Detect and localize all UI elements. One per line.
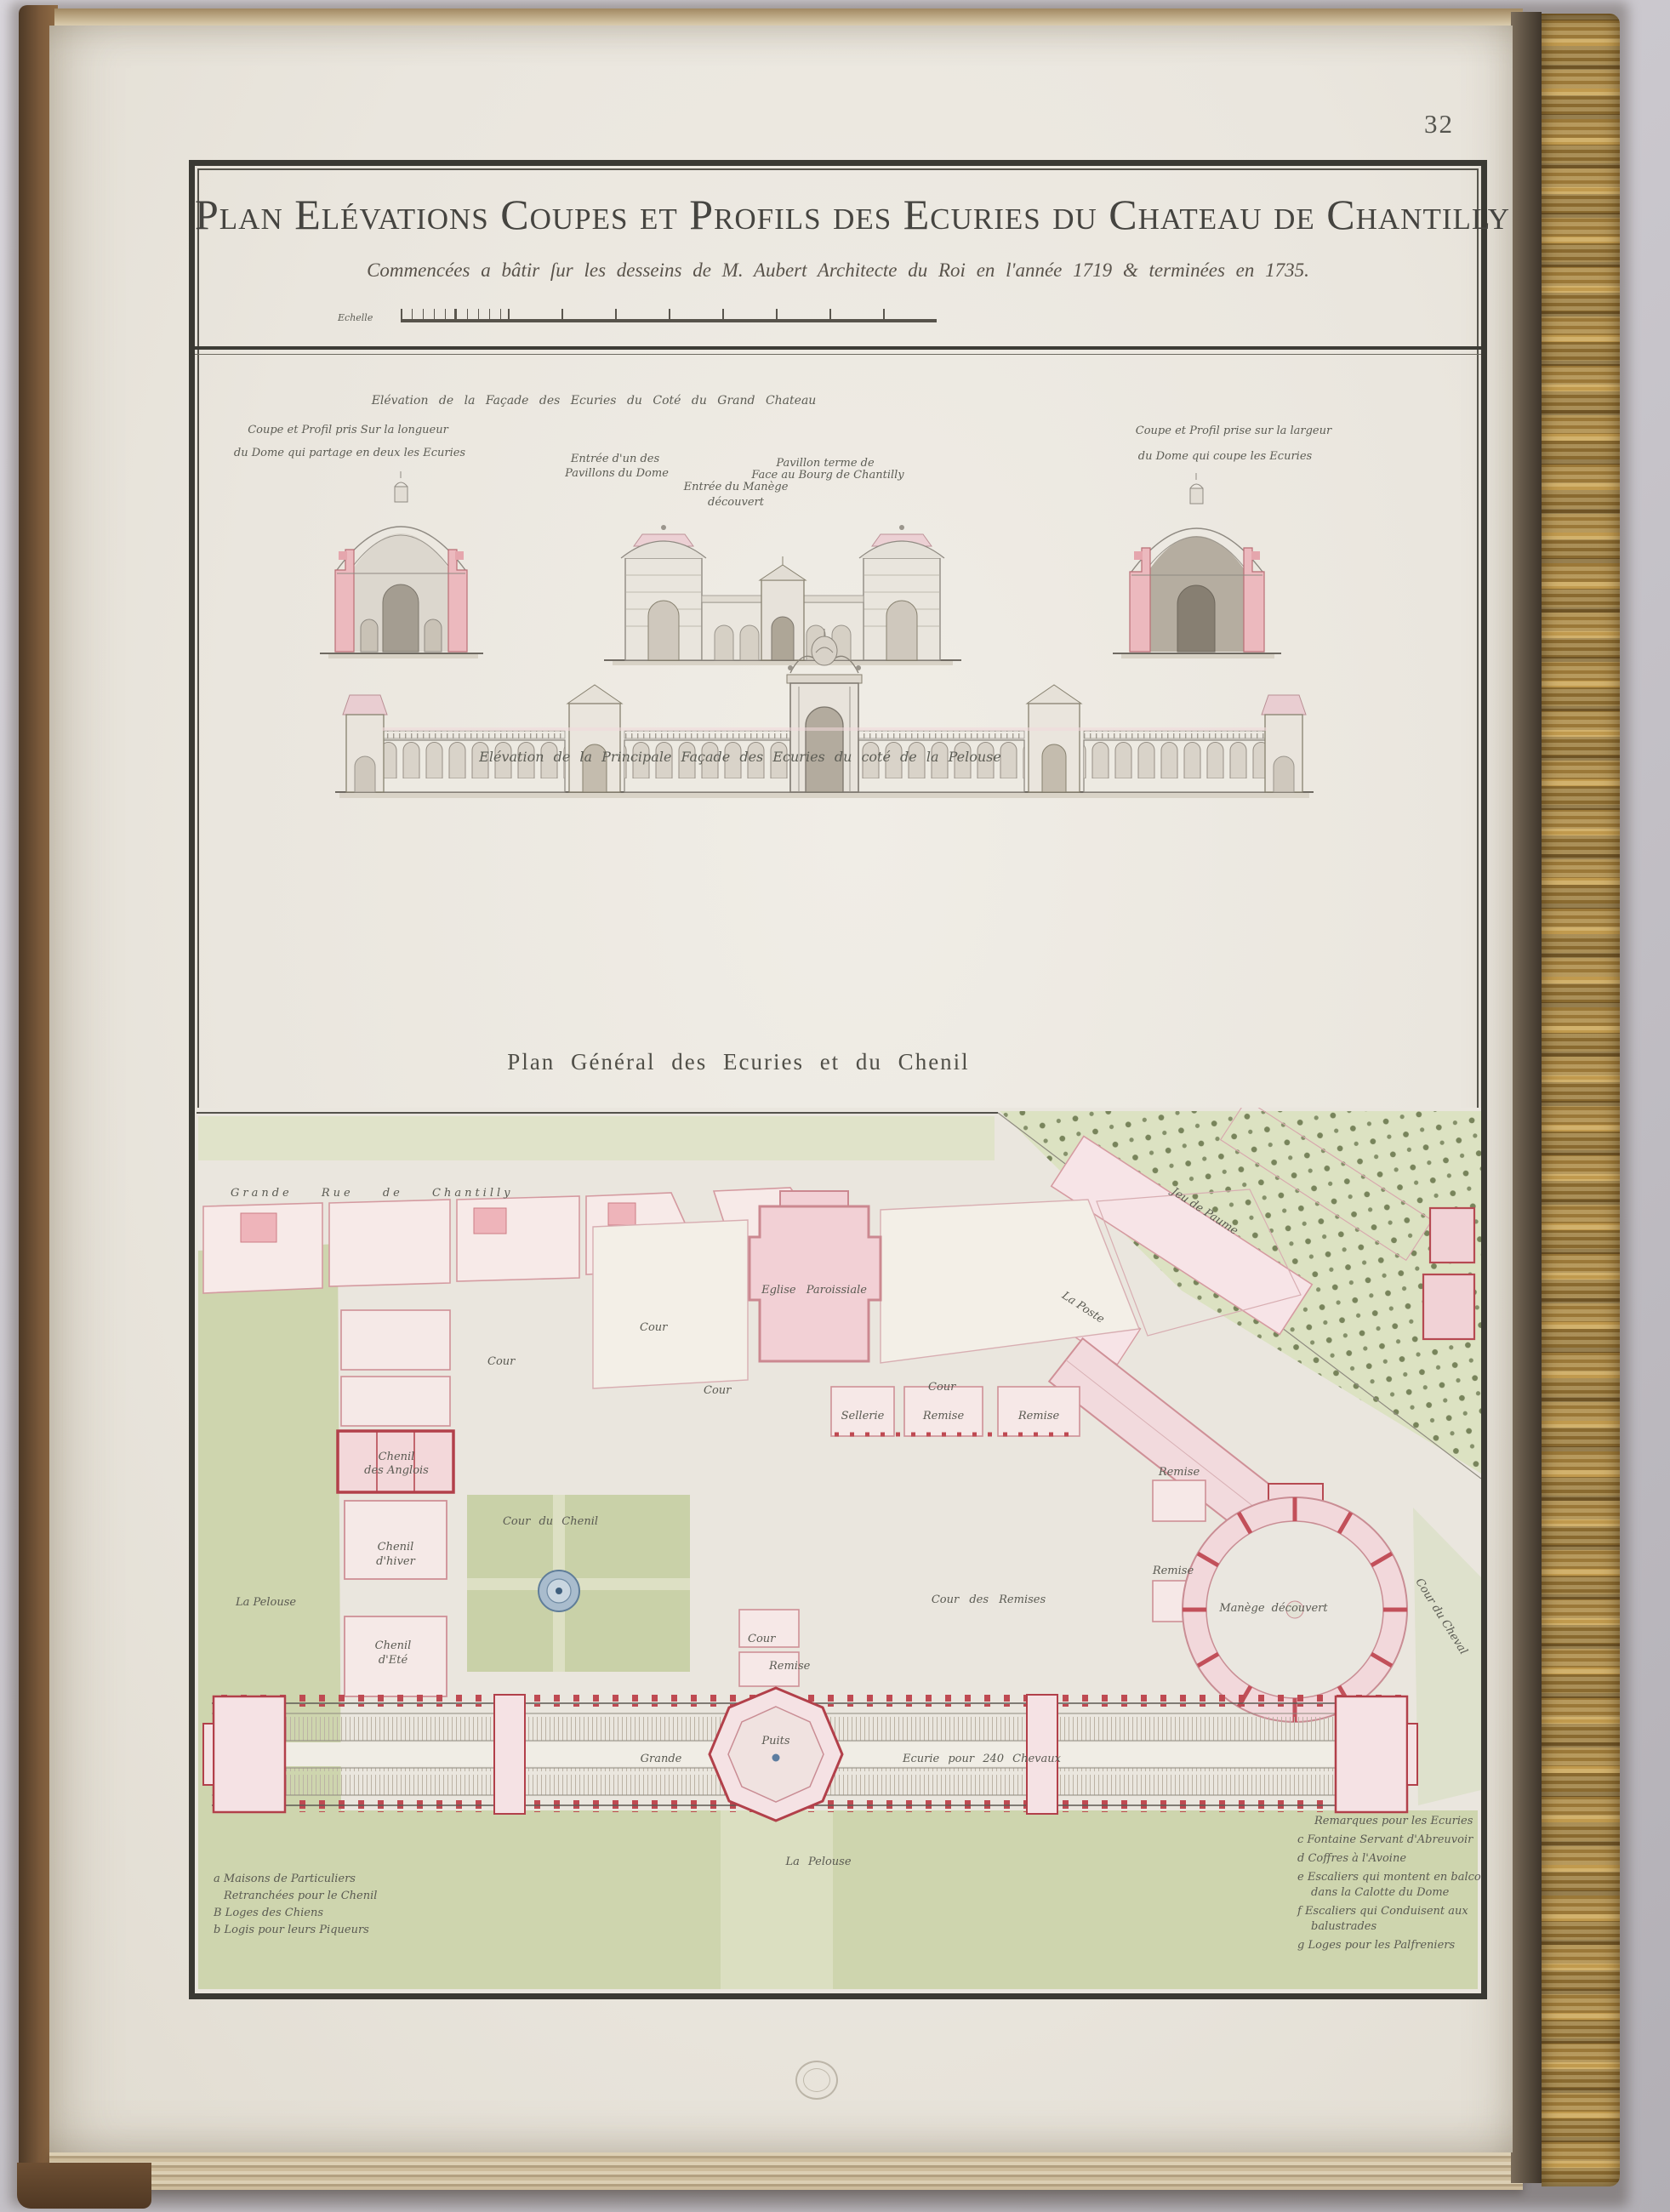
caption-left-section-1: Coupe et Profil pris Sur la longueur [248,424,448,436]
legend-right-line-e2: dans la Calotte du Dome [1311,1886,1450,1899]
plan-label-remise-5: Remise [768,1660,811,1673]
plan-label-pelouse-left: La Pelouse [235,1596,296,1609]
book-right-shadow-gap [1511,12,1542,2183]
caption-right-section-1: Coupe et Profil prise sur la largeur [1136,425,1331,437]
label-entrance-pavilion-1: Entrée d'un des [571,453,659,465]
caption-main-facade: Elévation de la Principale Façade des Ec… [479,749,1001,765]
legend-right-title: Remarques pour les Ecuries [1314,1815,1473,1827]
plan-label-cour-4: Cour [487,1355,516,1368]
plan-label-chenil-hiver-2: d'hiver [376,1555,415,1568]
title-separator-rule [195,346,1481,355]
scale-label: Echelle [338,312,373,323]
plan-label-manege: Manège découvert [1218,1602,1328,1615]
plate-frame: Plan Elévations Coupes et Profils des Ec… [189,160,1487,1999]
legend-right-line-c: c Fontaine Servant d'Abreuvoir [1297,1833,1473,1846]
blind-stamp [795,2061,838,2100]
plan-label-chenil-ete-1: Chenil [375,1639,412,1652]
legend-right-line-e1: e Escaliers qui montent en balcon [1297,1871,1481,1884]
label-end-pavilion-1: Pavillon terme de [776,457,874,470]
plan-label-cour-2: Cour [704,1384,732,1397]
plan-label-remise-1: Remise [922,1410,965,1422]
plan-label-remise-3: Remise [1158,1466,1200,1479]
plan-label-ecurie: Ecurie pour 240 Chevaux [902,1753,1062,1765]
book-cover-bottom-corner [17,2163,151,2209]
folio-number: 32 [1424,109,1454,140]
plan-label-cour-du-chenil: Cour du Chenil [503,1515,598,1528]
plan-label-chenil-anglois-2: des Anglois [364,1464,429,1477]
plate-title: Plan Elévations Coupes et Profils des Ec… [195,190,1481,239]
legend-right-line-d: d Coffres à l'Avoine [1297,1852,1406,1865]
plan-label-pelouse-bottom: La Pelouse [784,1856,851,1868]
legend-right-line-g: g Loges pour les Palfreniers [1297,1939,1455,1952]
plate-subtitle: Commencées a bâtir ſur les desseins de M… [195,259,1481,282]
legend-right-line-f2: balustrades [1311,1920,1376,1933]
label-end-pavilion-2: Face au Bourg de Chantilly [751,469,903,482]
legend-left-line-a2: Retranchées pour le Chenil [223,1890,377,1902]
plan-label-cour-des-remises: Cour des Remises [932,1593,1046,1606]
caption-right-section-2: du Dome qui coupe les Ecuries [1138,450,1312,463]
plan-label-eglise: Eglise Paroissiale [761,1284,867,1297]
drawing-main-facade [331,625,1318,817]
legend-right-line-f1: f Escaliers qui Conduisent aux [1297,1905,1468,1918]
scale-bar-subdivisions [401,309,511,319]
plan-label-cour-1: Cour [640,1321,668,1334]
plan-label-cour-3: Cour [928,1381,956,1394]
plan-label-sellerie: Sellerie [841,1410,885,1422]
plan-label-chenil-hiver-1: Chenil [378,1541,414,1554]
caption-court-facade: Elévation de la Façade des Ecuries du Co… [372,394,817,408]
plan-label-grande-rue: Grande Rue de Chantilly [231,1187,514,1200]
caption-left-section-2: du Dome qui partage en deux les Ecuries [234,447,465,459]
plan-label-grande: Grande [641,1753,682,1765]
legend-left-line-b1: B Loges des Chiens [213,1907,323,1919]
plan-caption: Plan Général des Ecuries et du Chenil [507,1049,969,1075]
label-manege-entrance-1: Entrée du Manège [684,481,789,493]
legend-left-line-a1: a Maisons de Particuliers [214,1873,356,1885]
plan-label-chenil-ete-2: d'Eté [379,1654,408,1667]
plan-drawing: Grande Rue de Chantilly Jeu de Paume La … [195,1108,1481,1993]
plan-label-cour-5: Cour [748,1633,776,1645]
book-bottom-page-edges [49,2151,1523,2190]
label-entrance-pavilion-2: Pavillons du Dome [565,467,669,480]
page: 32 Plan Elévations Coupes et Profils des… [49,26,1513,2152]
plan-label-remise-4: Remise [1152,1565,1194,1577]
plan-label-puits: Puits [761,1735,790,1747]
photo-backdrop: 32 Plan Elévations Coupes et Profils des… [0,0,1670,2212]
legend-left-line-b2: b Logis pour leurs Piqueurs [214,1924,369,1936]
plan-label-remise-2: Remise [1017,1410,1060,1422]
plan-label-chenil-anglois-1: Chenil [379,1451,415,1463]
book-gilt-fore-edge [1542,14,1620,2186]
